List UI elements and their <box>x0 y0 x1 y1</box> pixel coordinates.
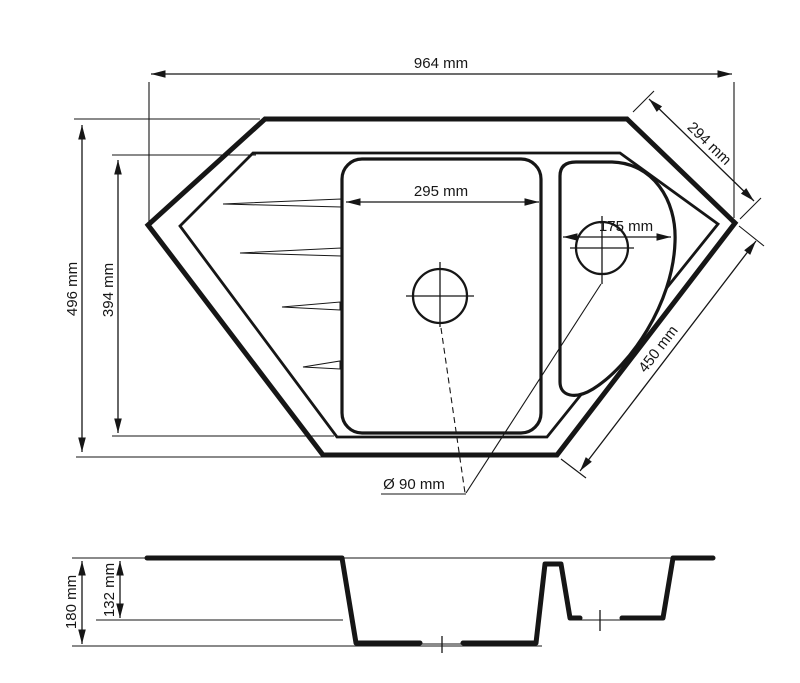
dim-drain-diameter-label: Ø 90 mm <box>383 476 445 493</box>
dim-main-bowl-width-label: 295 mm <box>414 183 468 200</box>
dim-inner-depth-label: 394 mm <box>100 263 117 317</box>
sink-technical-drawing: 964 mm 496 mm 394 mm 295 mm 175 mm <box>0 0 800 683</box>
section-profile-right <box>622 558 713 618</box>
dim-upper-right-edge-label: 294 mm <box>684 119 735 169</box>
dim-small-bowl-width-label: 175 mm <box>599 218 653 235</box>
section-profile-left <box>147 558 420 643</box>
dim-small-bowl-depth: 132 mm <box>101 561 120 618</box>
dim-total-depth-label: 180 mm <box>63 575 80 629</box>
section-view: 180 mm 132 mm <box>63 558 713 653</box>
top-view: 964 mm 496 mm 394 mm 295 mm 175 mm <box>64 55 764 494</box>
dim-small-bowl-depth-label: 132 mm <box>101 563 118 617</box>
section-profile-middle <box>463 564 580 643</box>
dim-overall-depth-label: 496 mm <box>64 262 81 316</box>
dim-total-depth: 180 mm <box>63 561 82 644</box>
drawing-canvas: 964 mm 496 mm 394 mm 295 mm 175 mm <box>0 0 800 683</box>
dim-overall-width-label: 964 mm <box>414 55 468 72</box>
